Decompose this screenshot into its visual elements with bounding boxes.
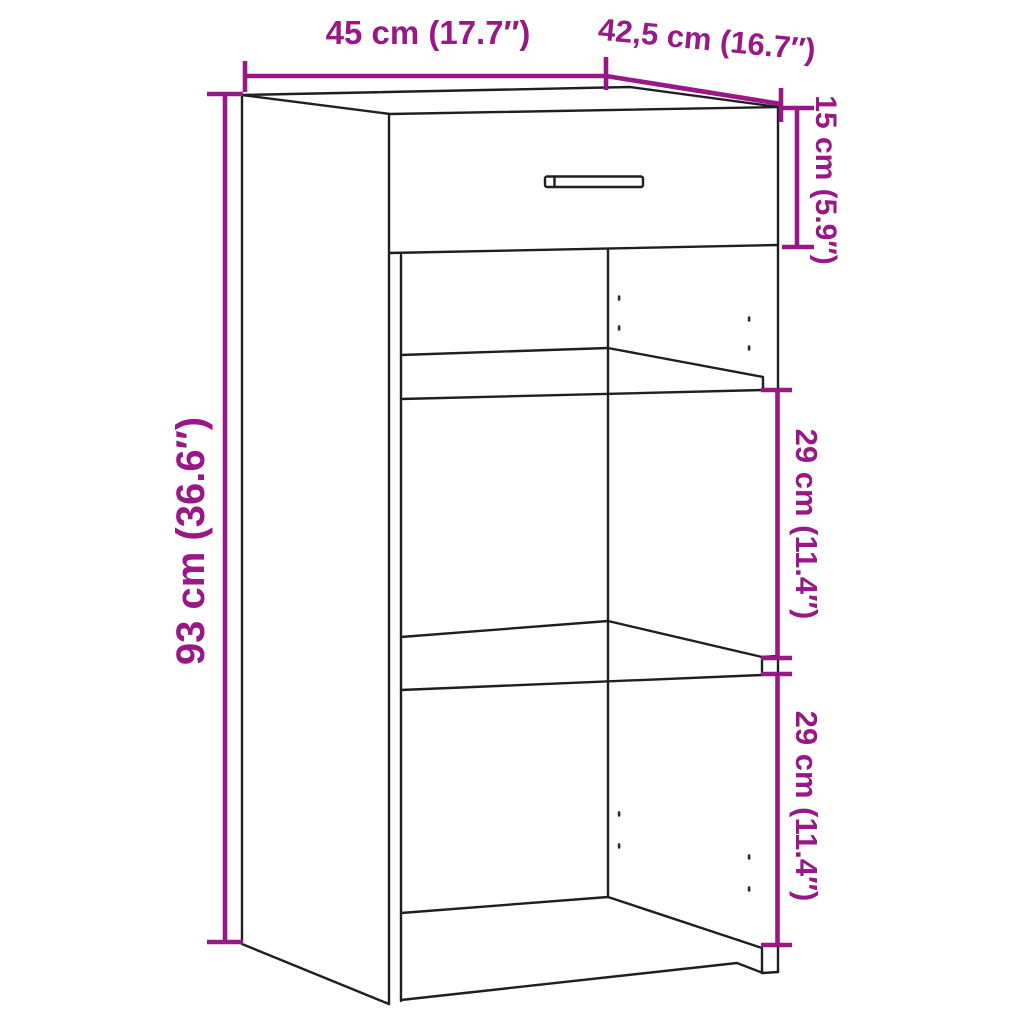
shelf-lower-top-edges — [401, 621, 762, 675]
dimension-upper-compartment-line — [761, 390, 792, 658]
cabinet-floor — [401, 897, 778, 1000]
cabinet-carcass — [242, 87, 778, 1004]
floor-top-edges — [401, 897, 762, 973]
drawer-handle — [545, 177, 643, 188]
dimension-depth-label: 42,5 cm (16.7″) — [597, 12, 818, 68]
drawer-handle-bar — [545, 177, 643, 188]
shelf-upper-top-edges — [401, 348, 763, 390]
pin-hole — [618, 811, 621, 817]
shelf-lower-front-edge — [401, 675, 762, 690]
drawer — [389, 177, 778, 254]
dimension-width-line — [245, 57, 606, 92]
dimension-drawer-height-label: 15 cm (5.9″) — [809, 95, 842, 264]
shelf-upper — [401, 348, 763, 399]
dimension-total-height: 93 cm (36.6″) — [169, 94, 243, 942]
dimension-lower-compartment: 29 cm (11.4″) — [761, 674, 824, 945]
dimension-width: 45 cm (17.7″) — [245, 14, 606, 92]
shelf-lower — [401, 621, 778, 690]
furniture-dimension-diagram: 45 cm (17.7″) 42,5 cm (16.7″) 15 cm (5.9… — [0, 0, 1024, 1024]
dimension-upper-compartment: 29 cm (11.4″) — [761, 390, 824, 658]
dimension-lower-compartment-line — [761, 674, 792, 945]
cabinet-left-panel-bottom-edge — [242, 944, 389, 1004]
pin-hole — [748, 886, 751, 892]
dimension-upper-compartment-label: 29 cm (11.4″) — [789, 429, 824, 620]
pin-hole — [748, 345, 751, 351]
pin-hole — [748, 316, 751, 322]
dimension-total-height-label: 93 cm (36.6″) — [169, 417, 213, 665]
cabinet-line-drawing: 45 cm (17.7″) 42,5 cm (16.7″) 15 cm (5.9… — [0, 0, 1024, 1024]
pin-hole — [748, 854, 751, 860]
shelf-pin-holes — [618, 295, 751, 892]
pin-hole — [618, 843, 621, 849]
pin-hole — [618, 325, 621, 331]
shelf-upper-front-edge — [401, 390, 763, 399]
floor-front-edge-and-right-foot — [401, 963, 778, 1000]
pin-hole — [618, 295, 621, 301]
dimension-width-label: 45 cm (17.7″) — [326, 14, 531, 51]
dimension-lower-compartment-label: 29 cm (11.4″) — [789, 711, 824, 902]
dimension-drawer-height: 15 cm (5.9″) — [782, 95, 842, 264]
drawer-bottom-edge — [389, 245, 778, 253]
